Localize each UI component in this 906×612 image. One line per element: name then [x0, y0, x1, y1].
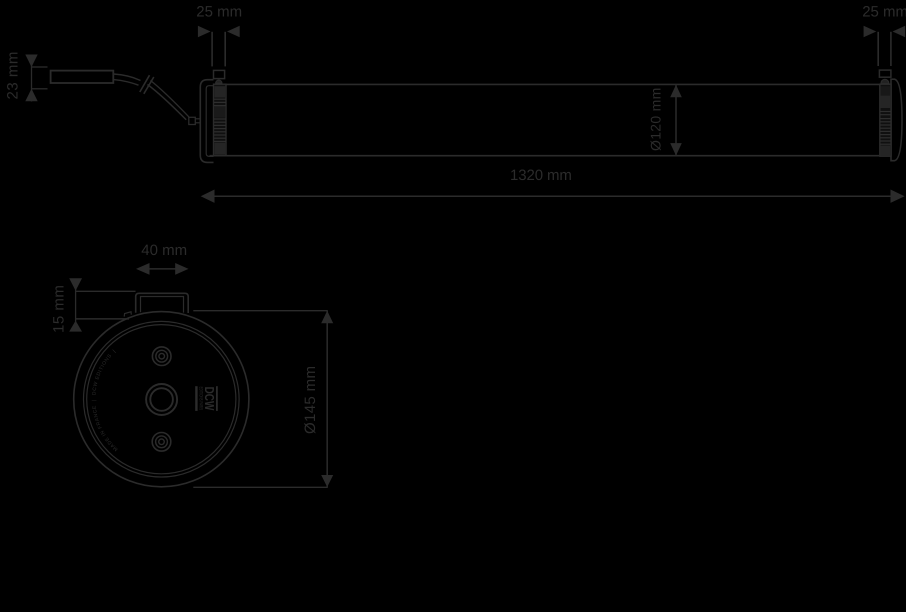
svg-text:25 mm: 25 mm — [862, 4, 906, 21]
svg-text:23 mm: 23 mm — [5, 51, 22, 99]
svg-text:EDITIONS PARIS: EDITIONS PARIS — [197, 387, 203, 411]
svg-text:DCW: DCW — [202, 387, 217, 411]
svg-text:Ø120 mm: Ø120 mm — [648, 87, 664, 151]
svg-text:40 mm: 40 mm — [141, 242, 187, 259]
svg-text:25 mm: 25 mm — [196, 4, 242, 21]
svg-text:15 mm: 15 mm — [51, 285, 68, 333]
svg-text:Ø145 mm: Ø145 mm — [302, 366, 319, 434]
svg-text:1320 mm: 1320 mm — [510, 167, 572, 184]
